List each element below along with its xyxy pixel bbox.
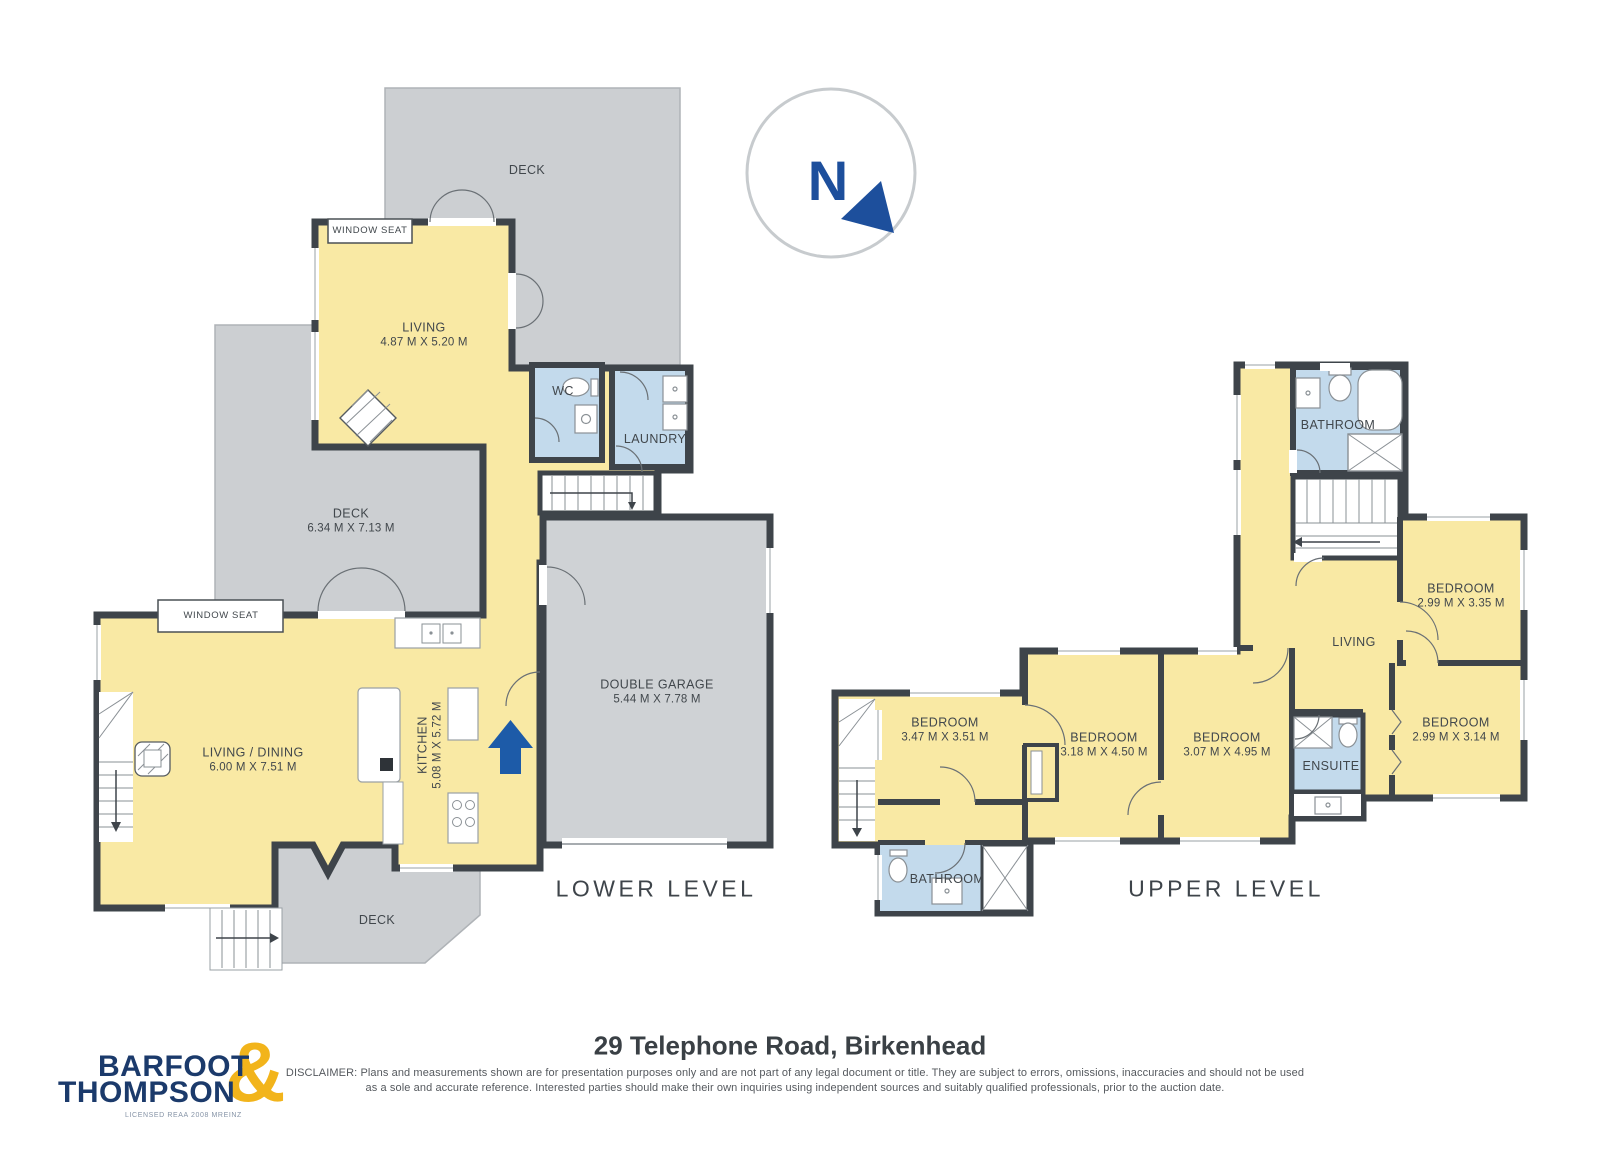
room-label-bedroom-e: BEDROOM 2.99 M X 3.14 M bbox=[1412, 714, 1499, 745]
garage-dims: 5.44 M X 7.78 M bbox=[600, 693, 714, 708]
living-dining-name: LIVING / DINING bbox=[202, 744, 303, 760]
bathroom-top-name: BATHROOM bbox=[1301, 417, 1376, 433]
room-label-bedroom-ne: BEDROOM 2.99 M X 3.35 M bbox=[1417, 580, 1504, 611]
kitchen-dims: 5.08 M X 5.72 M bbox=[431, 701, 446, 788]
lower-level-title: LOWER LEVEL bbox=[556, 876, 757, 903]
wc-name: WC bbox=[552, 383, 574, 399]
room-label-bedroom-c: BEDROOM 3.07 M X 4.95 M bbox=[1183, 729, 1270, 760]
disclaimer-line1: DISCLAIMER: Plans and measurements shown… bbox=[286, 1067, 1304, 1079]
living-name: LIVING bbox=[380, 319, 467, 335]
logo-tagline: LICENSED REAA 2008 MREINZ bbox=[125, 1112, 242, 1119]
bedroom-e-dims: 2.99 M X 3.14 M bbox=[1412, 731, 1499, 746]
stairs-left bbox=[99, 692, 133, 842]
garage-name: DOUBLE GARAGE bbox=[600, 676, 714, 692]
room-label-garage: DOUBLE GARAGE 5.44 M X 7.78 M bbox=[600, 676, 714, 707]
laundry-name: LAUNDRY bbox=[624, 431, 686, 447]
deck-top-name: DECK bbox=[509, 162, 545, 178]
upper-floor bbox=[835, 365, 1524, 913]
living-dims: 4.87 M X 5.20 M bbox=[380, 336, 467, 351]
room-label-deck-mid: DECK 6.34 M X 7.13 M bbox=[307, 505, 394, 536]
stairs-upper-left bbox=[839, 699, 875, 841]
window-seat-left-name: WINDOW SEAT bbox=[183, 610, 258, 622]
room-label-window-seat-left: WINDOW SEAT bbox=[183, 610, 258, 622]
room-label-living-upper: LIVING bbox=[1332, 634, 1375, 650]
kitchen-name: KITCHEN bbox=[414, 701, 430, 788]
room-label-laundry: LAUNDRY bbox=[624, 431, 686, 447]
bedroom-ne-dims: 2.99 M X 3.35 M bbox=[1417, 597, 1504, 612]
bedroom-c-dims: 3.07 M X 4.95 M bbox=[1183, 746, 1270, 761]
ensuite-name: ENSUITE bbox=[1303, 758, 1360, 774]
bedroom-w-dims: 3.47 M X 3.51 M bbox=[901, 731, 988, 746]
disclaimer-line2: as a sole and accurate reference. Intere… bbox=[366, 1082, 1225, 1094]
upper-level-plan bbox=[820, 350, 1540, 920]
address-title: 29 Telephone Road, Birkenhead bbox=[594, 1031, 987, 1062]
deck-bottom-name: DECK bbox=[359, 912, 395, 928]
room-label-wc: WC bbox=[552, 383, 574, 399]
bathroom-bottom-name: BATHROOM bbox=[910, 871, 985, 887]
room-label-kitchen: KITCHEN 5.08 M X 5.72 M bbox=[414, 701, 445, 788]
room-label-bathroom-top: BATHROOM bbox=[1301, 417, 1376, 433]
bedroom-c2-name: BEDROOM bbox=[1060, 729, 1147, 745]
bedroom-c-name: BEDROOM bbox=[1183, 729, 1270, 745]
room-label-window-seat-top: WINDOW SEAT bbox=[332, 225, 407, 237]
stairs-deck-bottom bbox=[210, 908, 282, 970]
lower-level-plan bbox=[80, 80, 780, 980]
window-seat-top-name: WINDOW SEAT bbox=[332, 225, 407, 237]
room-label-deck-top: DECK bbox=[509, 162, 545, 178]
room-label-deck-bottom: DECK bbox=[359, 912, 395, 928]
fireplace-left bbox=[135, 742, 170, 776]
logo-line2: THOMPSON bbox=[58, 1076, 235, 1110]
bedroom-ne-name: BEDROOM bbox=[1417, 580, 1504, 596]
bedroom-e-name: BEDROOM bbox=[1412, 714, 1499, 730]
upper-level-title: UPPER LEVEL bbox=[1128, 876, 1324, 903]
stairs-landing-gap bbox=[1294, 553, 1322, 562]
room-label-living-lower: LIVING 4.87 M X 5.20 M bbox=[380, 319, 467, 350]
living-upper-name: LIVING bbox=[1332, 634, 1375, 650]
deck-mid-dims: 6.34 M X 7.13 M bbox=[307, 522, 394, 537]
barfoot-thompson-logo: & BARFOOT THOMPSON LICENSED REAA 2008 MR… bbox=[55, 1028, 315, 1118]
floorplan-page: N bbox=[0, 0, 1600, 1167]
room-label-ensuite: ENSUITE bbox=[1303, 758, 1360, 774]
room-label-bedroom-c2: BEDROOM 3.18 M X 4.50 M bbox=[1060, 729, 1147, 760]
living-dining-dims: 6.00 M X 7.51 M bbox=[202, 761, 303, 776]
bedroom-c2-dims: 3.18 M X 4.50 M bbox=[1060, 746, 1147, 761]
room-label-living-dining: LIVING / DINING 6.00 M X 7.51 M bbox=[202, 744, 303, 775]
closet-door bbox=[1031, 751, 1042, 794]
bedroom-w-name: BEDROOM bbox=[901, 714, 988, 730]
room-label-bathroom-bottom: BATHROOM bbox=[910, 871, 985, 887]
deck-mid-name: DECK bbox=[307, 505, 394, 521]
room-label-bedroom-w: BEDROOM 3.47 M X 3.51 M bbox=[901, 714, 988, 745]
compass-north-letter: N bbox=[808, 149, 848, 212]
